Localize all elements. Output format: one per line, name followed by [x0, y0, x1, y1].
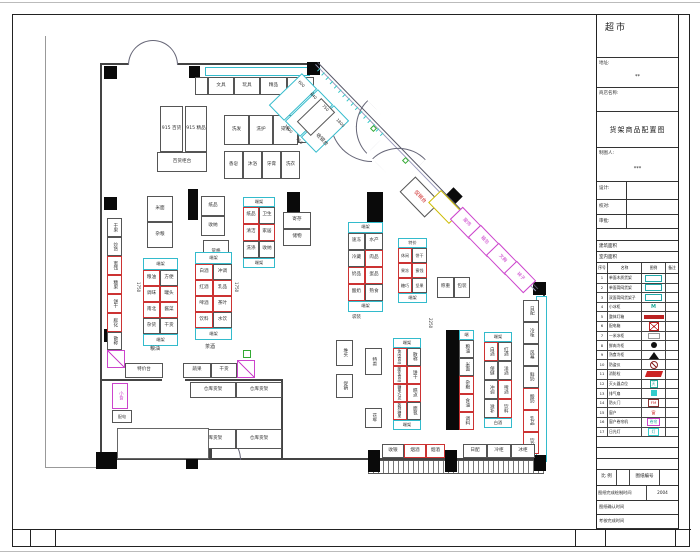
shelf-box: 饮料 [498, 399, 512, 418]
legend-item-name: 整体灯箱 [608, 312, 642, 321]
legend-symbol-cell [642, 293, 666, 302]
shelf-label: 仓库货架 [250, 437, 268, 442]
shelf-box: 端架 [393, 420, 421, 430]
legend-note-cell [666, 341, 678, 350]
shelf-label: 白酒 [489, 347, 494, 356]
shelf-box: 干货 [160, 318, 178, 334]
store-name-cell: 商店名称: [597, 88, 678, 112]
shelf-box: 915 精品 [185, 106, 207, 152]
wall [185, 379, 282, 381]
shelf-box: 家居 [259, 224, 275, 241]
shelf-box: 鲜奶 [523, 366, 539, 388]
shelf-box: 仓库货架 [190, 382, 236, 398]
legend-item-name: 排气扇 [608, 389, 642, 398]
shelf-box: 洗衣 [281, 151, 300, 179]
check-row: 校对: [597, 200, 678, 215]
legend-symbol-cell [642, 389, 666, 398]
shelf-box: 端架 [398, 293, 427, 303]
shelf-box: 纸品 [201, 196, 225, 216]
shelf-label: 速冻 [352, 239, 361, 244]
shelf-label: 调料 [464, 416, 469, 425]
plan-text: 茶酒 [205, 345, 215, 350]
legend-header-cell: 名称 [608, 263, 642, 273]
legend-row: 14防火门FM [597, 399, 678, 409]
legend-row-number: 9 [597, 351, 608, 360]
shelf-label: 端 [464, 333, 468, 337]
legend-item-name: 单面木质货架 [608, 274, 642, 283]
drafter-cell: 制图人: *** [597, 148, 678, 182]
shelf-label: 储物 [292, 235, 301, 240]
floor-plan: 文具玩具精品饰品915 百货915 精品百货柜台洗发洗护染发香皂沐浴牙膏洗衣米面… [0, 0, 700, 555]
shelf-box: 蔬果 [183, 363, 211, 378]
legend-item-name: 窗户 [608, 408, 642, 417]
column [367, 192, 383, 222]
shelf-label: 红酒 [199, 286, 208, 291]
shelf-box [195, 77, 208, 95]
legend-item-name: 灭火器点位 [608, 380, 642, 389]
shelf-label: 米面 [155, 207, 164, 212]
legend-row: 17日光灯灯 [597, 428, 678, 438]
shelf-label: 酱菜 [164, 308, 173, 313]
shelf-label: 文具 [216, 84, 225, 89]
shelf-label: 特卖 [371, 357, 376, 366]
legend-row-number: 10 [597, 360, 608, 369]
legend-row-number: 16 [597, 418, 608, 427]
shelf-label: 烟酒 [410, 449, 419, 454]
frame-line [30, 529, 31, 546]
cbox-symbol-icon: 灯 [648, 428, 660, 436]
legend-row-number: 13 [597, 389, 608, 398]
shelf-box: 杂货 [143, 318, 160, 334]
drafter-label: 制图人: [599, 150, 614, 156]
shelf-box: 配电 [112, 410, 132, 423]
shelf-label: 乳品 [218, 286, 227, 291]
shelf-label: 面包 [412, 406, 417, 415]
drbox-symbol-icon: FM [648, 399, 659, 407]
legend-row: 7一米冰柜 [597, 332, 678, 342]
shelf-box: 牙膏 [262, 151, 281, 179]
shelf-label: 糖果 [112, 280, 117, 289]
shelf-label: 日配 [529, 306, 534, 315]
shelf-box: 仓库货架 [236, 382, 282, 398]
shelf-box: 粮油 [143, 270, 160, 286]
shelf-box: 沐浴 [243, 151, 262, 179]
shelf-label: 杂粮 [464, 380, 469, 389]
shelf-label: 保健 [489, 366, 494, 375]
shelf-box: 特价台 [125, 363, 163, 378]
legend-row: 4小冰柜M [597, 303, 678, 313]
shelf-label: 洗衣 [286, 163, 295, 168]
shelf-box: 文具 [208, 77, 234, 95]
shelf-label: 水产 [369, 239, 378, 244]
plan-text: 2250 [428, 318, 432, 328]
shelf-box: 酱菜 [160, 302, 178, 318]
legend-item-name: 窗户卷帘机 [608, 418, 642, 427]
column [446, 330, 459, 430]
shelf-box: 米面 [459, 358, 474, 376]
shelf-box: 饼干 [412, 248, 427, 263]
shelf-label: 文胸 [497, 254, 507, 264]
xbox-symbol-icon [649, 322, 659, 331]
legend-note-cell [666, 312, 678, 321]
shelf-label: 南北 [147, 308, 156, 313]
shelf-label: 端架 [209, 332, 217, 336]
shelf-box: 端架 [243, 258, 275, 268]
box-c-symbol-icon [645, 294, 662, 301]
shelf-label: 精品 [269, 84, 278, 89]
shelf-label: 洋酒 [503, 366, 508, 375]
shelf-label: 端架 [156, 338, 164, 342]
shelf-label: 冰柜 [518, 449, 527, 454]
legend-note-cell [666, 322, 678, 331]
legend-note-cell [666, 332, 678, 341]
shelf-label: 日配 [470, 449, 479, 454]
shelf-box: 花车 [365, 408, 382, 428]
legend-item-name: 消防栓 [608, 370, 642, 379]
legend-symbol-cell [642, 274, 666, 283]
shelf-label: 罐头 [164, 292, 173, 297]
shelf-label: 休闲食品 [398, 349, 402, 364]
shelf-label: 饼干 [112, 299, 117, 308]
shelf-label: 冲调 [218, 270, 227, 275]
shelf-label: 端架 [156, 262, 164, 266]
shelf-label: 红酒 [503, 347, 508, 356]
plan-text: 袋装 [352, 316, 361, 321]
shelf-box: 糖果 [107, 275, 122, 294]
shelf-box: 食油 [459, 394, 474, 412]
column [534, 455, 546, 471]
legend-header-cell: 图例 [642, 263, 666, 273]
shelf-box: 端架 [243, 197, 275, 207]
rtext-symbol-icon: 窗 [651, 411, 655, 415]
wall-shelf-strip [205, 67, 310, 76]
boundary-line [45, 36, 46, 468]
shelf-label: 促销 [342, 381, 347, 390]
shelf-box: 南北 [143, 302, 160, 318]
shelf-box: 红酒 [498, 342, 512, 361]
review-time-label: 考核完成时间 [597, 515, 678, 529]
shelf-box: 白酒 [484, 418, 512, 428]
shelf-box: 米面 [147, 196, 173, 222]
shelf-box: 烟酒 [426, 444, 445, 458]
shelf-box: 日配 [523, 300, 539, 322]
shelf-label: 白酒 [199, 270, 208, 275]
door-arc [128, 40, 153, 65]
shelf-box: 端架 [348, 222, 383, 233]
column [104, 197, 117, 210]
shelf-label: 端架 [403, 423, 411, 427]
shelf-box: 纸品 [243, 207, 259, 224]
shelf-box [237, 360, 255, 378]
shelf-box: 调味 [143, 286, 160, 302]
shelf-box: 保健 [484, 361, 498, 380]
shelf-label: 粮油 [147, 276, 156, 281]
shelf-box: 乳品 [523, 410, 539, 432]
shelf-label: 饼干 [416, 254, 424, 258]
shelf-label: 特价 [408, 241, 416, 245]
shelf-box: 端架 [143, 258, 178, 270]
column [96, 452, 117, 469]
sheet-edge [0, 2, 700, 3]
shelf-label: 熟食 [369, 290, 378, 295]
shelf-label: 蔬果 [192, 368, 201, 373]
shelf-label: 干货 [219, 368, 228, 373]
shelf-box: 冷柜 [487, 444, 511, 458]
shelf-label: 卫生 [262, 213, 271, 218]
column [104, 66, 117, 79]
shelf-box: 膨化 [107, 313, 122, 332]
legend-note-cell [666, 360, 678, 369]
draw-time-label: 图纸完成绘制时间 [597, 486, 647, 500]
slash-symbol-icon [650, 361, 658, 369]
shelf-box: 烟酒 [404, 444, 426, 458]
legend-note-cell [666, 399, 678, 408]
shelf-label: 洗涤 [246, 247, 255, 252]
legend-note-cell [666, 370, 678, 379]
shelf-label: 奶品 [352, 273, 361, 278]
column [445, 450, 457, 472]
shelf-box: 饼干 [107, 294, 122, 313]
shelf-box: 寄存 [283, 212, 311, 229]
legend-symbol-cell [642, 332, 666, 341]
legend-symbol-cell [642, 360, 666, 369]
shelf-label: 箱包 [479, 236, 489, 246]
tri-symbol-icon [649, 352, 659, 359]
shelf-label: 烟酒 [431, 449, 440, 454]
legend-row: 10防盗仪 [597, 360, 678, 370]
shelf-label: 洗护 [256, 128, 265, 133]
shelf-label: 果冻 [401, 269, 409, 273]
project-title: 超市 [597, 14, 678, 58]
shelf-label: 寄存 [292, 218, 301, 223]
shelf-label: 乳品 [529, 416, 534, 425]
shelf-box: 收纳 [259, 241, 275, 258]
scale-label: 比 例 [597, 470, 617, 485]
legend-symbol-cell [642, 370, 666, 379]
shelf-box: 熟食 [365, 284, 383, 301]
address-label: 地址: [599, 60, 610, 66]
legend-row-number: 15 [597, 408, 608, 417]
shelf-box: 饼干 [407, 366, 421, 384]
legend-table: 1单面木质货架2单面背网货架3双面背网货架子4小冰柜M5整体灯箱6配电箱7一米冰… [597, 274, 678, 437]
shelf-box: 红酒 [195, 280, 213, 296]
shelf-label: 收银 [388, 449, 397, 454]
legend-item-name: 防盗仪 [608, 360, 642, 369]
shelf-box: 蛋品 [365, 267, 383, 284]
shelf-box [117, 428, 209, 459]
wall [100, 63, 102, 459]
shelf-box: 称重 [437, 277, 454, 298]
box-c-symbol-icon [645, 275, 662, 282]
shelf-box [243, 350, 251, 358]
legend-symbol-cell [642, 284, 666, 293]
shelf-label: 滋补 [489, 404, 494, 413]
box-c-symbol-icon [645, 284, 662, 291]
frame-line [605, 529, 606, 546]
shelf-box: 卫生 [259, 207, 275, 224]
shelf-label: 杂货 [147, 324, 156, 329]
shelf-label: 方便 [164, 276, 173, 281]
shelf-box: 肉品 [365, 250, 383, 267]
draw-time-row: 图纸完成绘制时间 2004 [597, 486, 678, 501]
legend-header-cell: 序号 [597, 263, 608, 273]
wall [100, 63, 128, 65]
legend-item-name: 小冰柜 [608, 303, 642, 312]
legend-symbol-cell: 灯 [642, 428, 666, 437]
shelf-label: 端架 [403, 341, 411, 345]
frame-line [55, 529, 56, 546]
legend-note-cell [666, 274, 678, 283]
shelf-box: 收银 [382, 444, 404, 458]
shelf-label: 散称 [112, 336, 117, 345]
shelf-box: 清洁 [243, 224, 259, 241]
shelf-box: 冲调 [484, 380, 498, 399]
shelf-box: 日配 [463, 444, 487, 458]
shelf-box: 散称 [107, 332, 122, 350]
shelf-label: 啤酒 [503, 385, 508, 394]
frame-line [575, 529, 576, 546]
shelf-box: 端架 [348, 301, 383, 312]
shelf-box: 罐头 [160, 286, 178, 302]
shelf-label: 端架 [255, 261, 263, 265]
legend-row-number: 8 [597, 341, 608, 350]
shelf-box: 蜜饯 [412, 263, 427, 278]
legend-symbol-cell [642, 341, 666, 350]
shelf-box: 储物 [283, 229, 311, 246]
wall [178, 63, 320, 65]
shelf-box: 糖巧 [398, 278, 412, 293]
shelf-box: 收纳 [201, 216, 225, 236]
drawing-title: 货架商品配置图 [597, 112, 678, 148]
blank-row [597, 229, 678, 241]
legend-row-number: 5 [597, 312, 608, 321]
legend-item-name: 单面背网货架 [608, 284, 642, 293]
shelf-label: 915 精品 [186, 127, 205, 132]
shelf-box: 端架 [195, 252, 232, 264]
shelf-box: 干货 [211, 363, 237, 378]
legend-note-cell [666, 293, 678, 302]
shelf-label: 白酒 [494, 421, 502, 425]
shelf-box: 乳品 [213, 280, 232, 296]
flag-symbol-icon [644, 371, 662, 377]
shelf-box: 端架 [143, 334, 178, 346]
shelf-label: 包装 [457, 285, 466, 290]
legend-row: 2单面背网货架 [597, 284, 678, 294]
shelf-box: 奶品 [348, 267, 365, 284]
shelf-label: 收纳 [208, 224, 217, 229]
shelf-box: 粮油 [459, 340, 474, 358]
shelf-box: 洗发 [224, 115, 249, 145]
legend-row: 1单面木质货架 [597, 274, 678, 284]
shelf-box: 散称 [407, 348, 421, 366]
shelf-box: 速冻 [348, 233, 365, 250]
shelf-box: 白酒 [484, 342, 498, 361]
shelf-box: 滋补 [484, 399, 498, 418]
shelf-label: 牙膏 [267, 163, 276, 168]
shelf-box: 炒货 [107, 237, 122, 256]
shelf-box: 洗涤 [243, 241, 259, 258]
legend-note-cell [666, 389, 678, 398]
legend-note-cell [666, 428, 678, 437]
drawing-sheet: 文具玩具精品饰品915 百货915 精品百货柜台洗发洗护染发香皂沐浴牙膏洗衣米面… [0, 0, 700, 555]
legend-row-number: 14 [597, 399, 608, 408]
legend-note-cell [666, 284, 678, 293]
legend-row-number: 6 [597, 322, 608, 331]
shelf-box: 玩具 [234, 77, 260, 95]
scale-row: 比 例 图纸编号 [597, 470, 678, 486]
shelf-label: 纸品 [208, 204, 217, 209]
shelf-label: 茶叶 [218, 302, 227, 307]
shelf-label: 特价台 [137, 368, 151, 373]
legend-row: 15窗户窗 [597, 408, 678, 418]
shelf-label: 冷藏 [352, 256, 361, 261]
legend-symbol-cell [642, 322, 666, 331]
shelf-box: 方便 [160, 270, 178, 286]
legend-note-cell [666, 351, 678, 360]
shelf-label: 香皂 [229, 163, 238, 168]
shelf-label: 冷柜 [494, 449, 503, 454]
shelf-label: 食油 [464, 398, 469, 407]
legend-row: 6配电箱 [597, 322, 678, 332]
shelf-label: 风幕 [529, 350, 534, 359]
legend-row: 5整体灯箱 [597, 312, 678, 322]
shelf-label: 称重 [441, 285, 450, 290]
shelf-label: 米面 [464, 362, 469, 371]
building-area-label: 建筑面积 [597, 241, 678, 252]
sheet-edge [0, 551, 700, 552]
shelf-box: 白酒 [195, 264, 213, 280]
legend-item-name: 配电箱 [608, 322, 642, 331]
legend-item-name: 一米冰柜 [608, 332, 642, 341]
shelf-box: 糖果巧克 [393, 384, 407, 402]
shelf-box: 酸奶 [523, 388, 539, 410]
gsq-symbol-icon: 灭 [650, 380, 658, 388]
legend-row: 8鲜肉冷柜 [597, 341, 678, 351]
confirm-time-label: 图纸确认时间 [597, 501, 678, 515]
plan-text: 1750 [136, 282, 140, 292]
shelf-label: 百货柜台 [173, 160, 191, 165]
shelf-label: 端架 [255, 200, 263, 204]
shelf-label: 饮料 [503, 404, 508, 413]
door-arc [153, 40, 178, 65]
shelf-box: 包装 [454, 277, 470, 298]
shelf-box: 坚果 [412, 278, 427, 293]
legend-item-name: 熟食冷柜 [608, 351, 642, 360]
shelf-box: 水饮 [213, 312, 232, 328]
approve-label: 审批: [597, 215, 627, 228]
legend-note-cell [666, 380, 678, 389]
shelf-label: 糖果巧克 [398, 385, 402, 400]
shelf-box: 酸奶 [348, 284, 365, 301]
shelf-label: 肉品 [369, 256, 378, 261]
shelf-label: 小食 [118, 391, 123, 400]
title-block: 超市 地址: ** 商店名称: 货架商品配置图 制图人: *** 设计: 校对:… [596, 14, 679, 529]
shelf-label: 清洁 [246, 230, 255, 235]
shelf-box: 休闲 [398, 248, 412, 263]
frame-line [12, 529, 691, 530]
shelf-label: 端架 [361, 304, 369, 308]
legend-row: 12灭火器点位灭 [597, 380, 678, 390]
shelf-box: 面包 [407, 402, 421, 420]
shelf-label: 膨化 [112, 318, 117, 327]
shelf-label: 散称 [412, 352, 417, 361]
dot-symbol-icon [651, 342, 657, 348]
legend-item-name: 防火门 [608, 399, 642, 408]
indoor-area-label: 室内面积 [597, 252, 678, 263]
shelf-box: 特卖 [365, 348, 382, 375]
check-label: 校对: [597, 200, 627, 214]
legend-row: 3双面背网货架子 [597, 293, 678, 303]
